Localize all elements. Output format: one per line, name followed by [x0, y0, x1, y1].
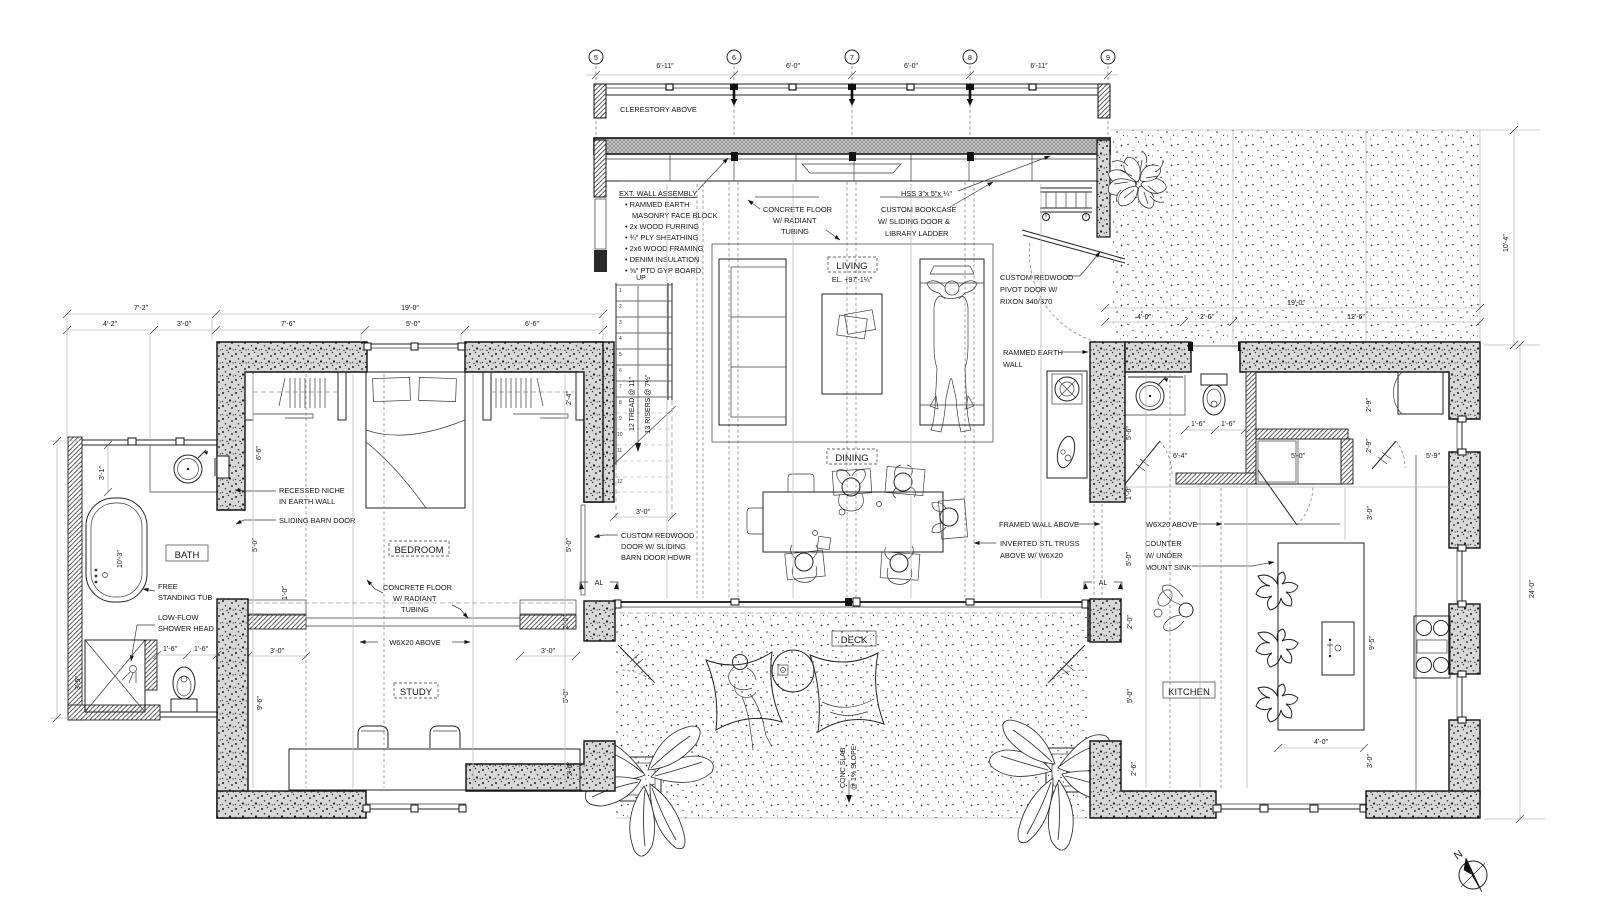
svg-text:6′-6″: 6′-6″ [525, 321, 539, 328]
svg-text:6′-11″: 6′-11″ [1030, 63, 1048, 70]
svg-text:4′-0″: 4′-0″ [1314, 739, 1328, 746]
svg-text:TUBING: TUBING [781, 227, 809, 236]
svg-text:COUNTER: COUNTER [1145, 539, 1182, 548]
svg-text:3′-1″: 3′-1″ [99, 466, 106, 480]
svg-text:1: 1 [619, 288, 622, 294]
svg-text:9: 9 [1106, 55, 1110, 62]
svg-text:CUSTOM REDWOOD: CUSTOM REDWOOD [621, 531, 694, 540]
svg-text:5′-0″: 5′-0″ [1127, 689, 1134, 703]
svg-text:• ¾″ PLY SHEATHING: • ¾″ PLY SHEATHING [625, 233, 699, 242]
svg-text:6: 6 [619, 368, 622, 374]
svg-text:5′-0″: 5′-0″ [1291, 453, 1305, 460]
svg-text:SLIDING BARN DOOR: SLIDING BARN DOOR [279, 516, 355, 525]
svg-text:6′-4″: 6′-4″ [1173, 453, 1187, 460]
svg-text:1′-6″: 1′-6″ [1221, 421, 1235, 428]
svg-text:DOOR W/ SLIDING: DOOR W/ SLIDING [621, 542, 686, 551]
svg-text:IN EARTH WALL: IN EARTH WALL [279, 497, 335, 506]
svg-text:LIVING: LIVING [836, 261, 867, 272]
svg-text:19′-0″: 19′-0″ [1287, 300, 1305, 307]
svg-text:2′-6″: 2′-6″ [1200, 314, 1214, 321]
svg-text:1′-6″: 1′-6″ [163, 646, 177, 653]
svg-text:W/ RADIANT: W/ RADIANT [773, 216, 817, 225]
svg-text:W/ RADIANT: W/ RADIANT [393, 594, 437, 603]
svg-text:INVERTED STL TRUSS: INVERTED STL TRUSS [1000, 539, 1080, 548]
svg-text:5′-9″: 5′-9″ [1426, 453, 1440, 460]
svg-text:@ 1% SLOPE: @ 1% SLOPE [851, 745, 858, 790]
svg-text:UP: UP [636, 275, 646, 282]
svg-text:10′-4″: 10′-4″ [1503, 234, 1510, 252]
svg-text:2′-9″: 2′-9″ [1366, 398, 1373, 412]
svg-text:6′-6″: 6′-6″ [256, 446, 263, 460]
svg-text:KITCHEN: KITCHEN [1168, 687, 1210, 698]
svg-text:10: 10 [617, 432, 623, 438]
svg-text:3′-5″: 3′-5″ [75, 676, 82, 690]
svg-text:2′-0″: 2′-0″ [1127, 615, 1134, 629]
svg-text:LIBRARY LADDER: LIBRARY LADDER [885, 229, 948, 238]
svg-text:FREE: FREE [158, 582, 178, 591]
svg-text:12 TREAD @ 11″: 12 TREAD @ 11″ [629, 376, 636, 431]
svg-text:ABOVE W/ W6X20: ABOVE W/ W6X20 [1000, 551, 1063, 560]
svg-text:CONC SLAB: CONC SLAB [840, 747, 847, 788]
svg-text:6′-0″: 6′-0″ [904, 63, 918, 70]
svg-text:19′-0″: 19′-0″ [401, 305, 419, 312]
svg-text:EXT. WALL ASSEMBLY: EXT. WALL ASSEMBLY [619, 189, 697, 198]
svg-text:4′-0″: 4′-0″ [1137, 314, 1151, 321]
svg-text:8: 8 [968, 55, 972, 62]
svg-text:W/ SLIDING DOOR &: W/ SLIDING DOOR & [878, 217, 950, 226]
svg-text:5: 5 [619, 352, 622, 358]
svg-text:STANDING TUB: STANDING TUB [158, 593, 212, 602]
svg-text:PIVOT DOOR W/: PIVOT DOOR W/ [1000, 285, 1058, 294]
svg-text:5′-0″: 5′-0″ [1126, 552, 1133, 566]
svg-text:6: 6 [732, 55, 736, 62]
svg-text:1′-6″: 1′-6″ [194, 646, 208, 653]
svg-text:MOUNT SINK: MOUNT SINK [1145, 563, 1191, 572]
svg-text:7′-2″: 7′-2″ [134, 305, 148, 312]
svg-text:BARN DOOR HDWR: BARN DOOR HDWR [621, 553, 691, 562]
svg-text:BATH: BATH [175, 550, 200, 561]
svg-text:13 RISERS @ 7½″: 13 RISERS @ 7½″ [644, 374, 652, 434]
svg-text:LOW-FLOW: LOW-FLOW [158, 613, 199, 622]
svg-text:9′-5″: 9′-5″ [1369, 636, 1376, 650]
svg-text:3′-0″: 3′-0″ [270, 648, 284, 655]
svg-text:9′-6″: 9′-6″ [257, 696, 264, 710]
svg-text:TUBING: TUBING [401, 605, 429, 614]
svg-text:10′-3″: 10′-3″ [117, 550, 124, 568]
svg-text:DECK: DECK [841, 635, 868, 646]
svg-text:3: 3 [619, 320, 622, 326]
svg-text:24′-0″: 24′-0″ [1529, 580, 1536, 598]
svg-text:MASONRY FACE BLOCK: MASONRY FACE BLOCK [632, 211, 718, 220]
svg-text:W6X20 ABOVE: W6X20 ABOVE [1146, 520, 1197, 529]
svg-text:W6X20 ABOVE: W6X20 ABOVE [389, 638, 440, 647]
svg-text:11: 11 [617, 448, 622, 454]
svg-text:RECESSED NICHE: RECESSED NICHE [279, 486, 345, 495]
svg-text:4: 4 [619, 336, 622, 342]
svg-text:2′-6″: 2′-6″ [1131, 762, 1138, 776]
svg-text:9: 9 [619, 416, 622, 422]
svg-text:RAMMED EARTH: RAMMED EARTH [1003, 348, 1063, 357]
svg-text:STUDY: STUDY [400, 687, 433, 698]
svg-text:• ⅝″ PTD GYP BOARD: • ⅝″ PTD GYP BOARD [625, 266, 701, 275]
svg-text:• DENIM INSULATION: • DENIM INSULATION [625, 255, 699, 264]
svg-text:7: 7 [850, 55, 854, 62]
svg-text:3′-0″: 3′-0″ [1367, 754, 1374, 768]
svg-text:1′-6″: 1′-6″ [1191, 421, 1205, 428]
svg-text:12′-6″: 12′-6″ [1347, 314, 1365, 321]
svg-text:3′-0″: 3′-0″ [636, 509, 650, 516]
svg-text:5: 5 [594, 55, 598, 62]
svg-text:2: 2 [619, 304, 622, 310]
svg-text:AL: AL [1099, 580, 1108, 587]
svg-text:• 2x6 WOOD FRAMING: • 2x6 WOOD FRAMING [625, 244, 704, 253]
svg-text:2′-0″: 2′-0″ [563, 615, 570, 629]
svg-text:AL: AL [595, 580, 604, 587]
svg-text:2′-6″: 2′-6″ [567, 762, 574, 776]
svg-text:5′-6″: 5′-6″ [1126, 426, 1133, 440]
svg-text:SHOWER HEAD: SHOWER HEAD [158, 624, 214, 633]
svg-text:5′-0″: 5′-0″ [406, 321, 420, 328]
svg-text:3′-0″: 3′-0″ [541, 648, 555, 655]
svg-text:BEDROOM: BEDROOM [394, 545, 443, 556]
svg-text:12: 12 [617, 479, 623, 485]
svg-text:EL. +97′-1¼″: EL. +97′-1¼″ [832, 277, 873, 284]
svg-text:CLERESTORY ABOVE: CLERESTORY ABOVE [620, 105, 697, 114]
svg-text:1′-0″: 1′-0″ [1126, 486, 1133, 500]
svg-text:7: 7 [619, 384, 622, 390]
svg-text:6′-11″: 6′-11″ [656, 63, 674, 70]
svg-text:W/ UNDER: W/ UNDER [1145, 551, 1182, 560]
svg-text:FRAMED WALL ABOVE: FRAMED WALL ABOVE [999, 520, 1079, 529]
svg-text:DINING: DINING [835, 453, 868, 464]
svg-text:CUSTOM REDWOOD: CUSTOM REDWOOD [1000, 273, 1073, 282]
svg-text:5′-0″: 5′-0″ [563, 689, 570, 703]
svg-text:• 2x WOOD FURRING: • 2x WOOD FURRING [625, 222, 699, 231]
svg-text:CONCRETE FLOOR: CONCRETE FLOOR [763, 205, 832, 214]
svg-text:7′-6″: 7′-6″ [281, 321, 295, 328]
svg-text:• RAMMED EARTH: • RAMMED EARTH [625, 200, 689, 209]
svg-text:8: 8 [619, 400, 622, 406]
svg-text:RIXON 340/370: RIXON 340/370 [1000, 297, 1052, 306]
svg-text:6′-0″: 6′-0″ [786, 63, 800, 70]
svg-text:3′-0″: 3′-0″ [1367, 506, 1374, 520]
svg-text:2′-9″: 2′-9″ [1366, 439, 1373, 453]
svg-text:WALL: WALL [1003, 360, 1023, 369]
svg-text:2′-4″: 2′-4″ [566, 391, 573, 405]
svg-text:1′-0″: 1′-0″ [282, 586, 289, 600]
svg-text:CUSTOM BOOKCASE: CUSTOM BOOKCASE [881, 205, 956, 214]
svg-text:CONCRETE FLOOR: CONCRETE FLOOR [383, 583, 452, 592]
svg-text:4′-2″: 4′-2″ [103, 321, 117, 328]
svg-text:3′-0″: 3′-0″ [177, 321, 191, 328]
svg-text:5′-0″: 5′-0″ [566, 538, 573, 552]
